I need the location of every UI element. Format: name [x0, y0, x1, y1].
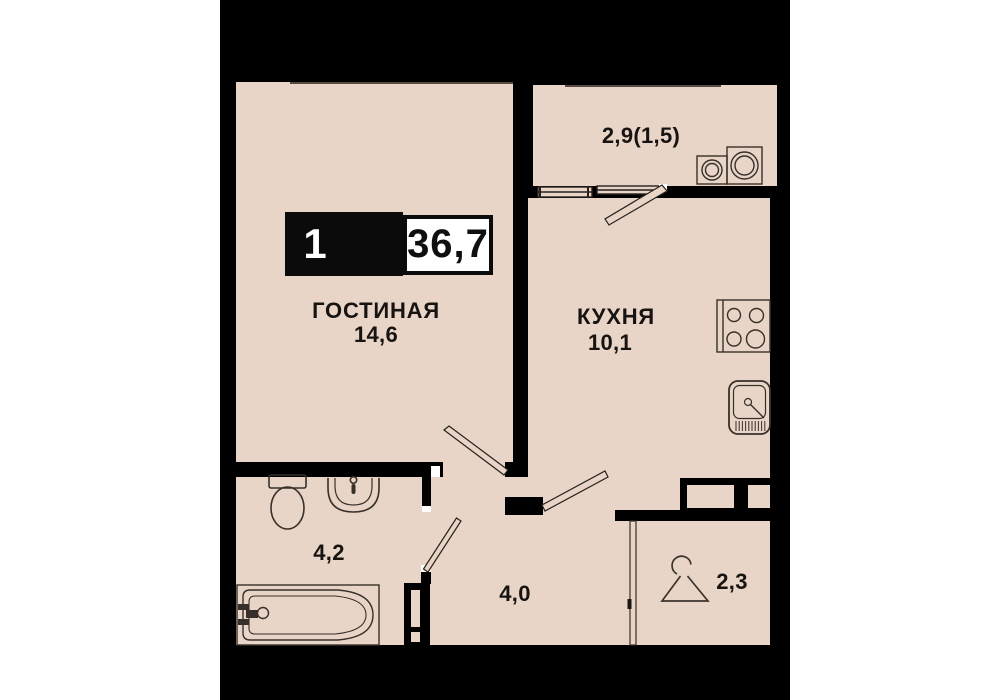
- living-room-label: ГОСТИНАЯ: [276, 299, 476, 323]
- room-hallway: [430, 477, 633, 645]
- hallway-area-label: 4,0: [465, 582, 565, 606]
- window-icon: [290, 82, 513, 84]
- kitchen-area-label: 10,1: [540, 331, 680, 355]
- bathroom-area-label: 4,2: [279, 541, 379, 565]
- total-area: 36,7: [407, 222, 489, 266]
- window-icon: [565, 85, 721, 87]
- rooms-count: 1: [293, 212, 337, 276]
- balcony-area-label: 2,9(1,5): [576, 124, 706, 148]
- rooms-count-badge: 1: [285, 212, 403, 276]
- kitchen-label: КУХНЯ: [546, 305, 686, 329]
- total-area-badge: 36,7: [403, 215, 493, 275]
- living-door-opening: [443, 462, 505, 477]
- living-area-label: 14,6: [276, 323, 476, 347]
- closet-area-label: 2,3: [695, 570, 769, 594]
- floor-plan: 1 36,7 2,9(1,5) ГОСТИНАЯ 14,6 КУХНЯ 10,1…: [0, 0, 1006, 700]
